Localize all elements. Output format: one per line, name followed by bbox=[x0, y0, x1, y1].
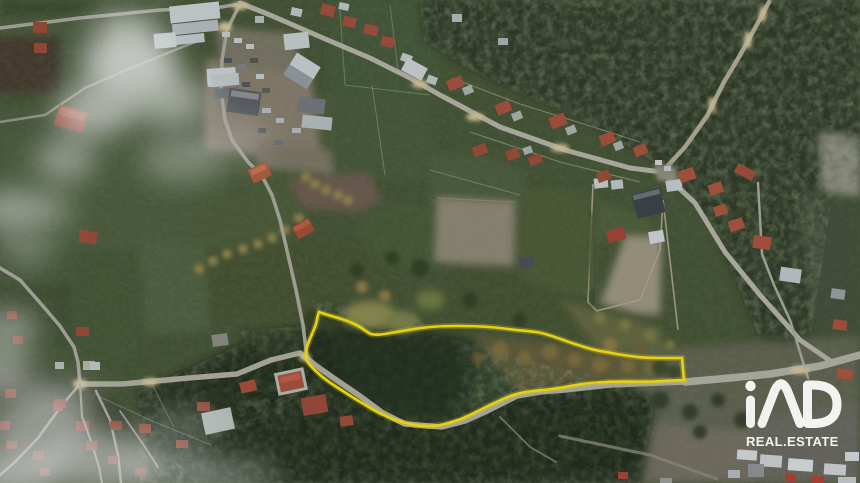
svg-text:REAL.ESTATE: REAL.ESTATE bbox=[746, 434, 839, 449]
